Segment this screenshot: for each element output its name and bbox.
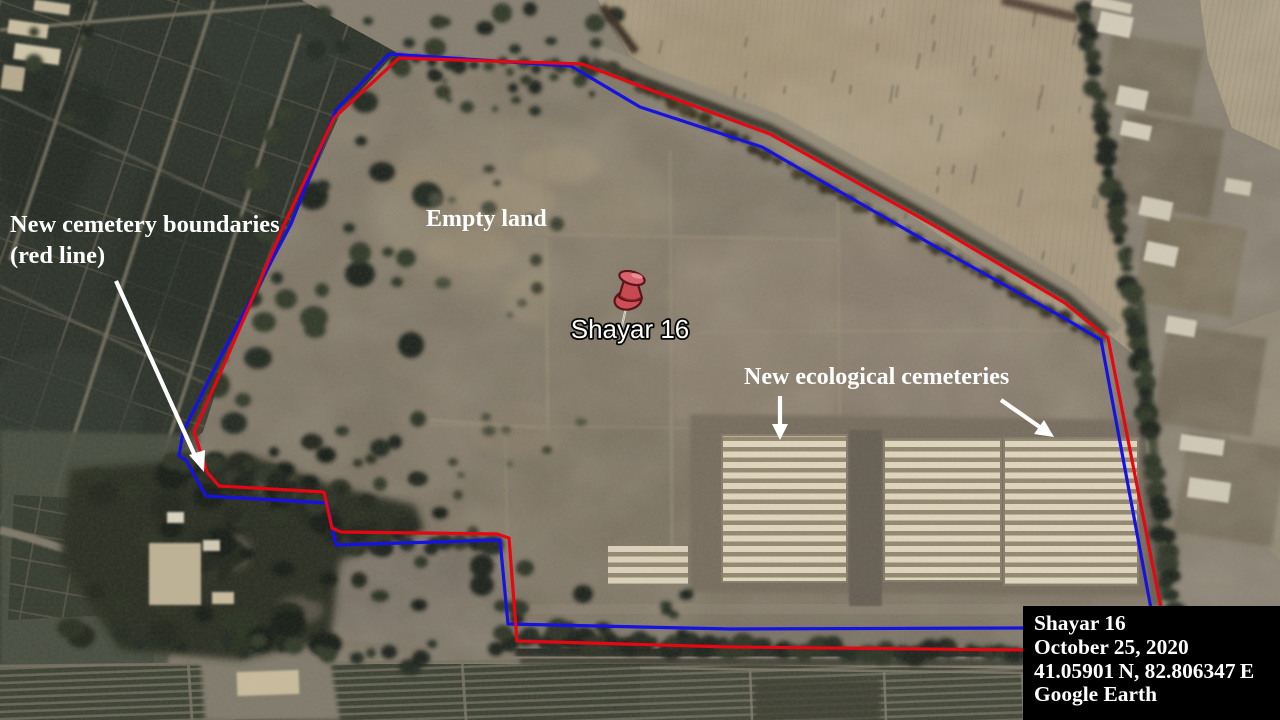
svg-text:Shayar 16: Shayar 16 [571, 314, 690, 344]
